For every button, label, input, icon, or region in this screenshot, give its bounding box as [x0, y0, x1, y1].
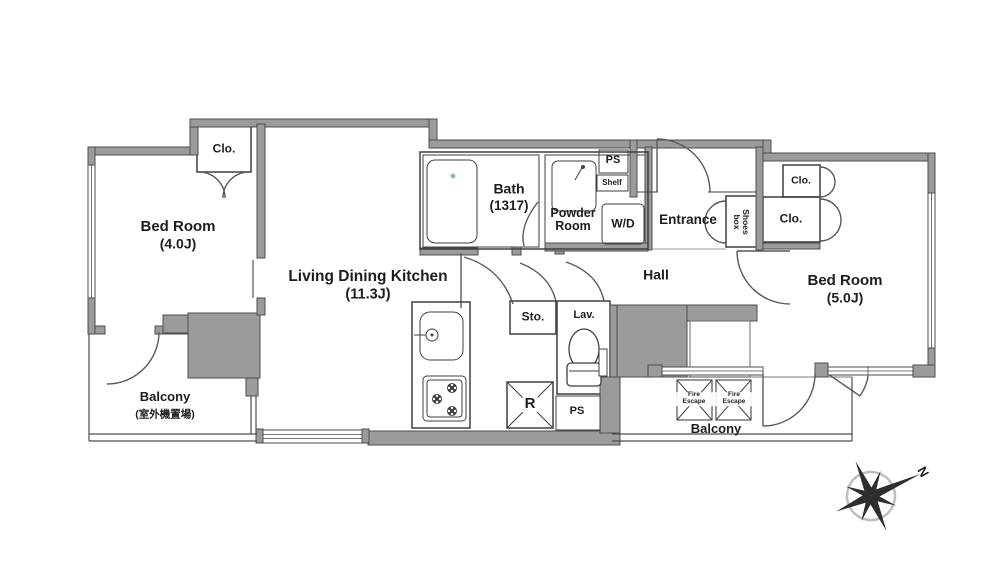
storage-label: Sto.	[522, 311, 545, 324]
bedroom-right-balcony-door-arc	[763, 374, 815, 426]
doors	[107, 139, 868, 426]
entrance-label: Entrance	[659, 213, 717, 227]
powder-sink-icon	[552, 161, 596, 211]
ldk-size: (11.3J)	[345, 287, 390, 302]
balcony-left-note: (室外機置場)	[135, 409, 195, 420]
closet-top-left-door-arc	[199, 172, 225, 198]
toilet-icon	[567, 329, 607, 386]
balcony-left-label: Balcony	[140, 390, 191, 404]
pipe-space-top-label: PS	[606, 155, 621, 167]
ldk-door-arc	[464, 257, 513, 304]
stove	[423, 376, 466, 421]
bath-size: (1317)	[489, 199, 528, 213]
fire-escape-right-label: Fire Escape	[715, 392, 753, 406]
closet-bifold-arc	[820, 199, 841, 220]
burner-icon	[447, 383, 457, 393]
ldk-label: Living Dining Kitchen	[288, 269, 447, 285]
fire-escape-left-label: Fire Escape	[675, 392, 713, 406]
bedroom-right-label: Bed Room	[808, 273, 883, 289]
lavatory-door-arc	[566, 262, 604, 301]
bedroom-left-balcony-door-arc	[107, 332, 159, 384]
floor-plan: Bed Room (4.0J) Living Dining Kitchen (1…	[0, 0, 1003, 562]
bathtub-drain-icon	[451, 174, 456, 179]
closet-right-lower-label: Clo.	[780, 213, 803, 226]
shoes-box-label: Shoes box	[732, 207, 750, 237]
bedroom-left-label: Bed Room	[141, 219, 216, 235]
refrigerator-label: R	[523, 396, 538, 412]
balcony-right-label: Balcony	[691, 422, 742, 436]
shelf-label: Shelf	[602, 179, 622, 187]
closet-top-left-door-arc	[223, 172, 249, 198]
kitchen-counter	[412, 302, 470, 428]
window-swing-arc	[860, 376, 868, 396]
window	[263, 430, 362, 443]
closet-bifold-arc	[820, 167, 835, 182]
bath-label: Bath	[493, 182, 524, 197]
washer-dryer-label: W/D	[611, 218, 634, 231]
compass-icon	[821, 439, 936, 546]
burner-icon	[432, 394, 442, 404]
burner-icon	[447, 406, 457, 416]
closet-bifold-arc	[820, 220, 841, 241]
closet-right-upper-label: Clo.	[791, 175, 811, 186]
bedroom-left-size: (4.0J)	[160, 237, 197, 252]
bathtub	[427, 160, 477, 243]
bedroom-right-door-arc	[737, 251, 790, 304]
hall-label: Hall	[643, 268, 669, 283]
closet-top-left-label: Clo.	[213, 143, 236, 156]
lavatory-label: Lav.	[573, 310, 594, 322]
bedroom-right-size: (5.0J)	[827, 291, 864, 306]
storage-door-arc	[520, 263, 556, 301]
pipe-space-bottom-label: PS	[570, 406, 585, 418]
powder-room-label: Powder Room	[540, 207, 606, 233]
closet-bifold-arc	[820, 182, 835, 197]
